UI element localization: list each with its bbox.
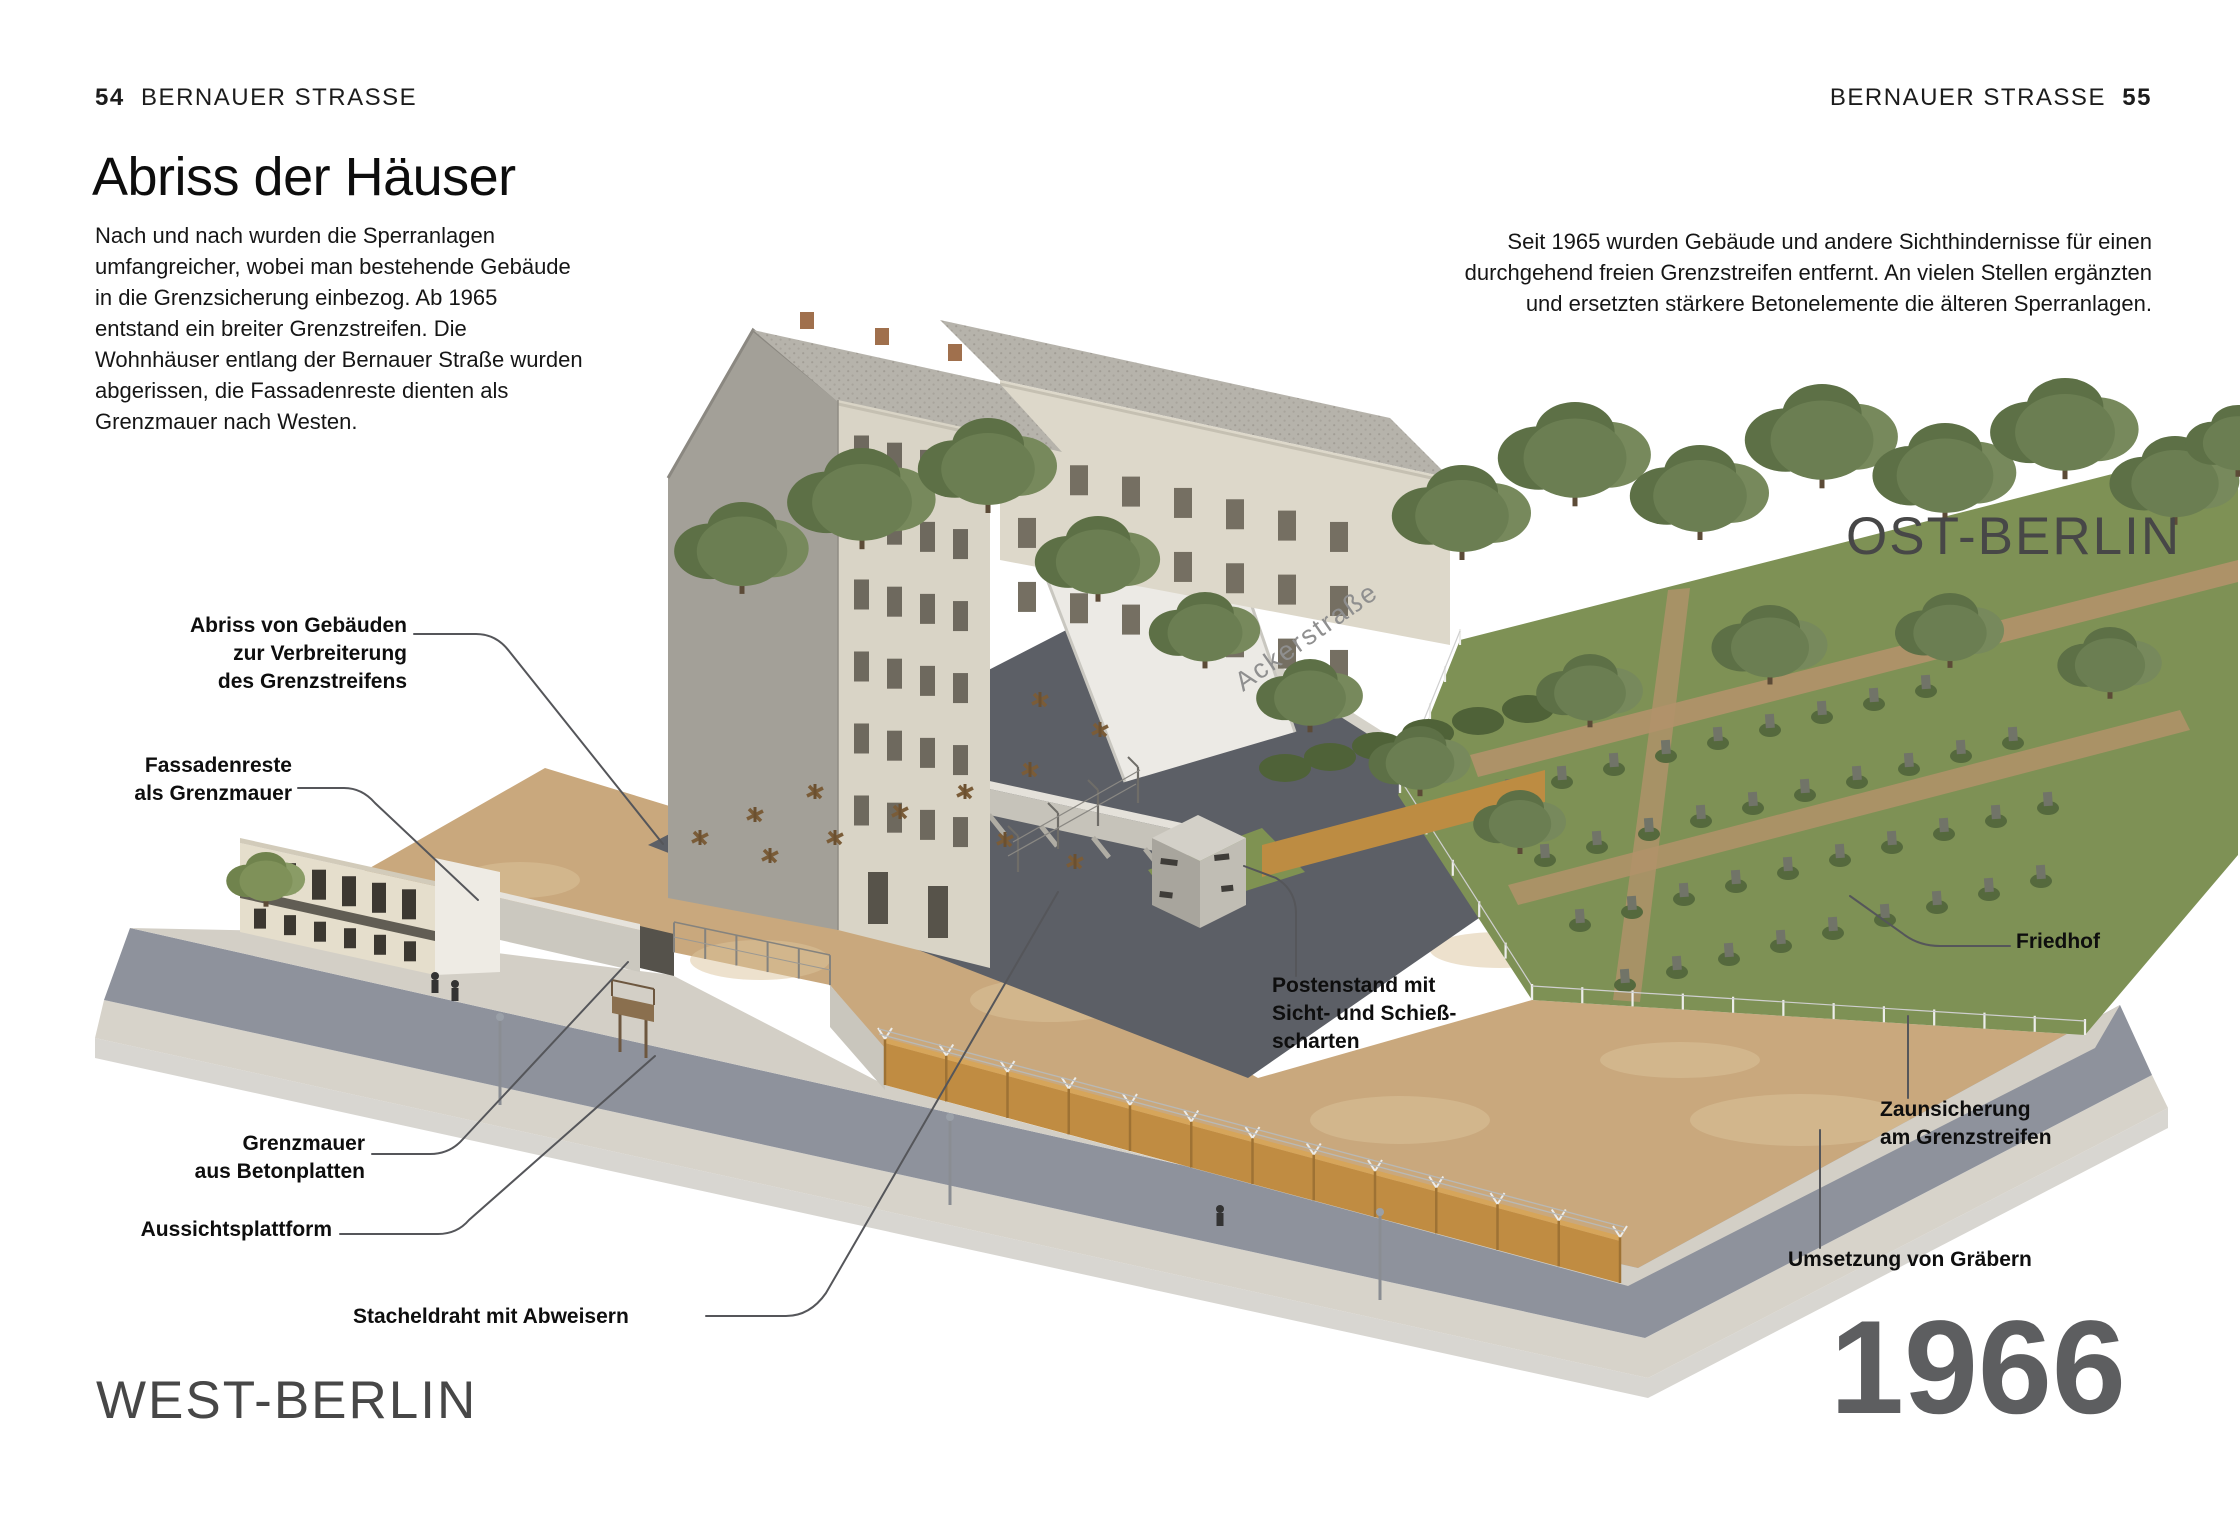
- postenstand-structure: [1152, 815, 1246, 928]
- page-title: Abriss der Häuser: [92, 146, 516, 208]
- callout-fassadenreste: Fassadenreste als Grenzmauer: [134, 752, 292, 808]
- page-header-right: BERNAUER STRASSE 55: [1830, 84, 2152, 112]
- border-gate: [640, 926, 674, 976]
- callout-aussichtsplattform: Aussichtsplattform: [141, 1216, 332, 1244]
- running-title-left: BERNAUER STRASSE: [141, 84, 417, 111]
- callout-friedhof: Friedhof: [2016, 928, 2100, 956]
- region-label-west-berlin: WEST-BERLIN: [96, 1370, 477, 1431]
- callout-postenstand: Postenstand mit Sicht- und Schieß- schar…: [1272, 972, 1456, 1056]
- page-number-right: 55: [2122, 84, 2152, 111]
- page-number-left: 54: [95, 84, 125, 111]
- intro-paragraph-left: Nach und nach wurden die Sperranlagen um…: [95, 220, 585, 437]
- page-header-left: 54 BERNAUER STRASSE: [95, 84, 417, 112]
- intro-paragraph-right: Seit 1965 wurden Gebäude und andere Sich…: [1452, 226, 2152, 319]
- region-label-ost-berlin: OST-BERLIN: [1846, 506, 2181, 567]
- year-label: 1966: [1830, 1302, 2126, 1435]
- callout-stacheldraht: Stacheldraht mit Abweisern: [353, 1303, 629, 1331]
- callout-zaunsicherung: Zaunsicherung am Grenzstreifen: [1880, 1096, 2052, 1152]
- callout-abriss: Abriss von Gebäuden zur Verbreiterung de…: [190, 612, 407, 696]
- callout-grenzmauer: Grenzmauer aus Betonplatten: [195, 1130, 365, 1186]
- running-title-right: BERNAUER STRASSE: [1830, 84, 2106, 111]
- callout-umsetzung: Umsetzung von Gräbern: [1788, 1246, 2032, 1274]
- end-wall: [435, 858, 500, 975]
